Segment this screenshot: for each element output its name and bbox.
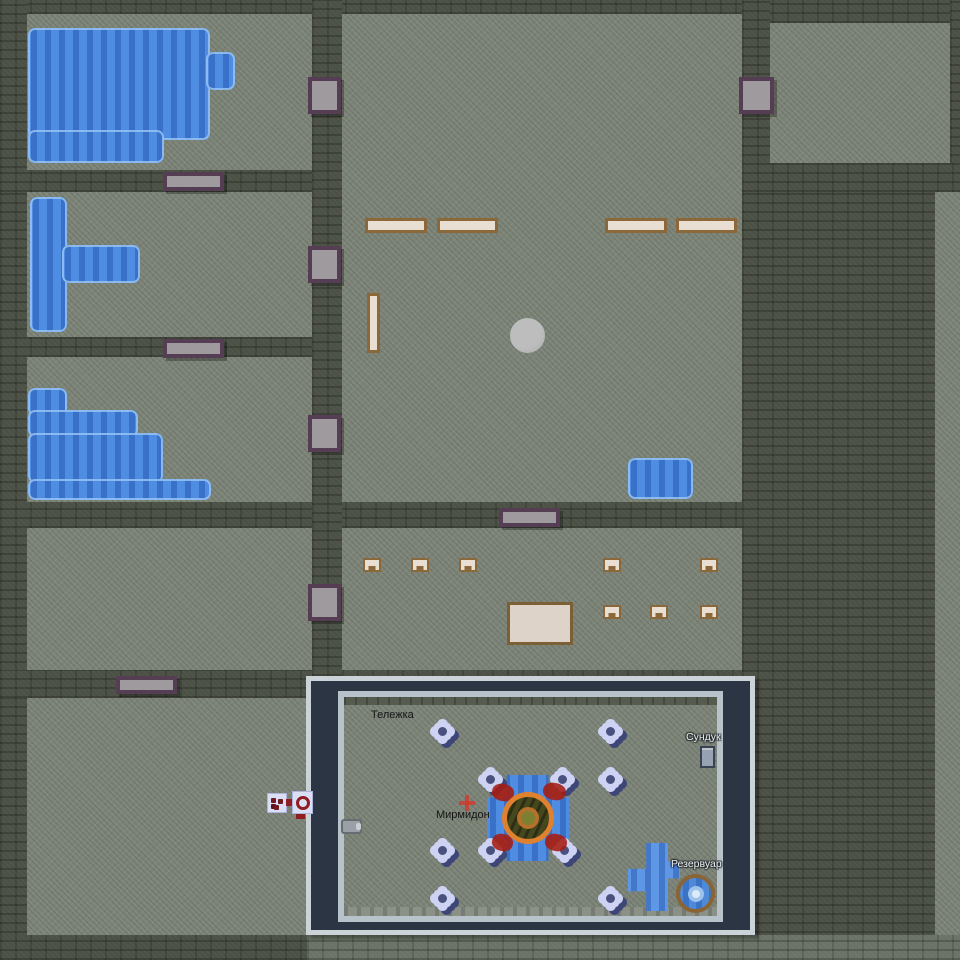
chair[interactable]	[411, 558, 429, 572]
mechanism-wheel-icon[interactable]	[292, 791, 313, 814]
unexplored-area	[742, 192, 935, 960]
water-pool	[62, 245, 140, 283]
flower[interactable]	[602, 771, 622, 791]
door[interactable]	[499, 508, 560, 527]
chair[interactable]	[650, 605, 668, 619]
door[interactable]	[308, 584, 341, 621]
water-pool	[206, 52, 235, 90]
reservoir-label: Резервуар	[671, 858, 722, 870]
wall	[0, 935, 307, 960]
water-pool	[28, 130, 164, 163]
water-pool	[28, 479, 211, 500]
cart-label: Тележка	[371, 709, 414, 721]
chair[interactable]	[603, 605, 621, 619]
table[interactable]	[676, 218, 737, 233]
chair[interactable]	[603, 558, 621, 572]
wall	[742, 0, 960, 23]
flower[interactable]	[434, 723, 454, 743]
door[interactable]	[116, 676, 177, 694]
chest[interactable]	[700, 746, 715, 768]
flower[interactable]	[434, 842, 454, 862]
mechanism-stub	[296, 814, 305, 819]
myrmidon-creature[interactable]	[502, 792, 554, 844]
game-map: ТележкаМирмидонСундукРезервуар	[0, 0, 960, 960]
boulder[interactable]	[510, 318, 545, 353]
chest-label: Сундук	[686, 731, 721, 743]
table[interactable]	[437, 218, 498, 233]
chair[interactable]	[363, 558, 381, 572]
flower[interactable]	[602, 723, 622, 743]
door[interactable]	[308, 77, 341, 114]
water-pool	[28, 433, 163, 483]
lever[interactable]	[341, 819, 362, 834]
wall	[0, 502, 743, 528]
water-pool	[628, 458, 693, 499]
flower[interactable]	[602, 890, 622, 910]
door[interactable]	[163, 339, 224, 358]
door[interactable]	[308, 246, 341, 283]
wall	[307, 935, 960, 960]
wall	[742, 163, 960, 192]
chair[interactable]	[700, 558, 718, 572]
wall	[0, 170, 312, 192]
chair[interactable]	[459, 558, 477, 572]
mechanism-icon[interactable]	[267, 793, 287, 813]
door[interactable]	[163, 172, 224, 191]
reservoir[interactable]	[676, 874, 715, 913]
table[interactable]	[367, 293, 380, 353]
wall	[344, 697, 717, 705]
table[interactable]	[605, 218, 667, 233]
wall	[0, 0, 27, 960]
wall	[0, 0, 742, 14]
wall	[0, 337, 312, 357]
door[interactable]	[739, 77, 774, 114]
table[interactable]	[365, 218, 427, 233]
chair[interactable]	[700, 605, 718, 619]
table[interactable]	[507, 602, 573, 645]
water-pool	[28, 28, 210, 140]
myrmidon-label: Мирмидон	[436, 809, 490, 821]
flower[interactable]	[434, 890, 454, 910]
door[interactable]	[308, 415, 341, 452]
